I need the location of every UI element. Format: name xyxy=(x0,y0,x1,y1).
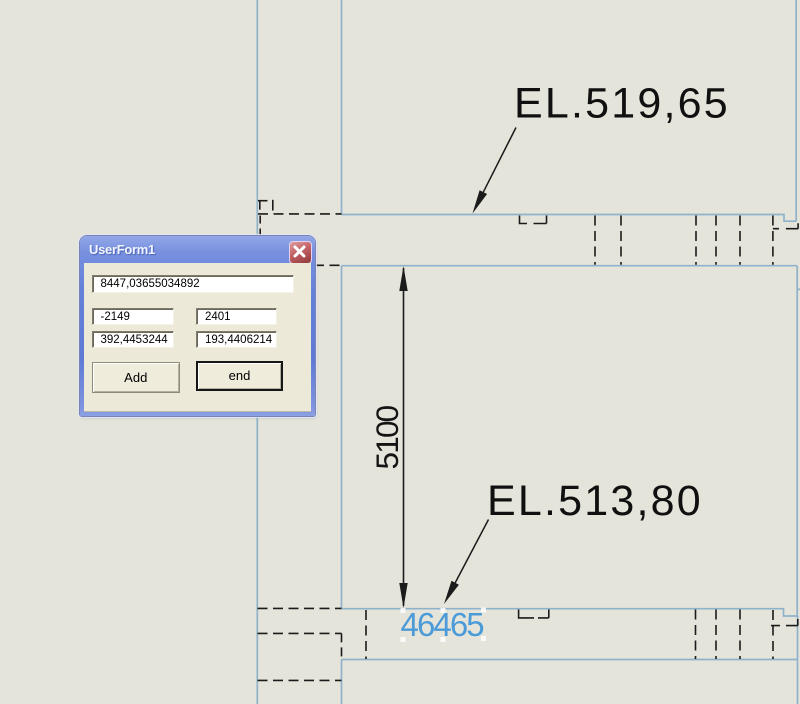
svg-text:5100: 5100 xyxy=(369,405,405,469)
svg-text:EL.513,80: EL.513,80 xyxy=(487,477,703,525)
svg-text:EL.519,65: EL.519,65 xyxy=(514,80,730,128)
